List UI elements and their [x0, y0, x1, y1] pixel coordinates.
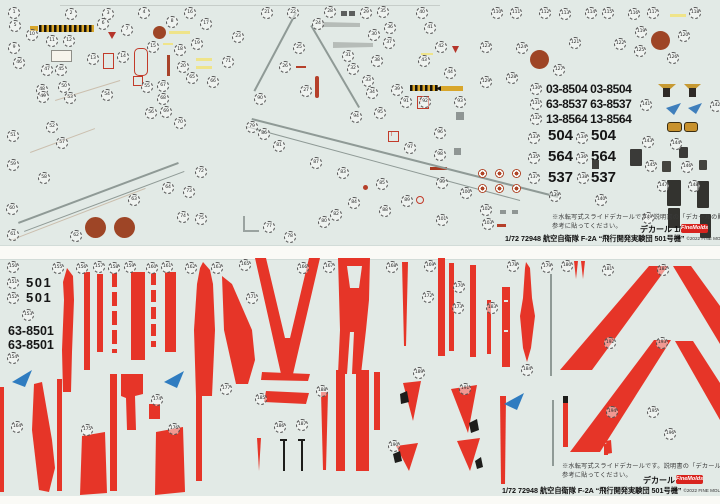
finemolds-logo: FineMolds [676, 475, 703, 484]
decal-number-marker: 192 [604, 337, 616, 349]
decal-number-marker: 160 [146, 262, 158, 274]
sheet2-number-markers: 1501511521531541551561571581591601611621… [0, 0, 720, 504]
decal-number-marker: 182 [657, 264, 669, 276]
decal-number-marker: 156 [76, 262, 88, 274]
decal-number-marker: 181 [602, 264, 614, 276]
decal-number-marker: 179 [541, 261, 553, 273]
decal-number-marker: 189 [413, 367, 425, 379]
decal-number-marker: 173 [452, 302, 464, 314]
decal-number-marker: 158 [108, 262, 120, 274]
decal-number-marker: 196 [664, 428, 676, 440]
decal-number-marker: 172 [422, 291, 434, 303]
sheet1-product-line: 1/72 72948 航空自衛隊 F-2A “飛行開発実験団 501号機”©20… [505, 234, 720, 244]
decal-number-marker: 195 [647, 406, 659, 418]
decal-number-marker: 164 [11, 421, 23, 433]
sheet1-product-text: 1/72 72948 航空自衛隊 F-2A “飛行開発実験団 501号機” [505, 234, 684, 243]
decal-number-marker: 170 [453, 281, 465, 293]
sheet1-note-line2: 参考に貼ってください。 [552, 223, 622, 230]
decal-number-marker: 194 [606, 406, 618, 418]
decal-number-marker: 153 [22, 309, 34, 321]
decal-number-marker: 166 [297, 262, 309, 274]
decal-number-marker: 155 [52, 262, 64, 274]
decal-number-marker: 152 [7, 292, 19, 304]
sheet2-product-text: 1/72 72948 航空自衛隊 F-2A “飛行開発実験団 501号機” [502, 486, 681, 495]
decal-number-marker: 159 [124, 261, 136, 273]
decal-number-marker: 154 [7, 352, 19, 364]
sheet1-note-line1: ※水転写式スライドデカールです。説明書の「デカールの貼り方」を [552, 214, 720, 221]
decal-number-marker: 185 [255, 393, 267, 405]
decal-number-marker: 163 [211, 262, 223, 274]
sheet2-note-line1: ※水転写式スライドデカールです。説明書の「デカールの貼り方」を [562, 463, 720, 470]
decal-number-marker: 183 [486, 302, 498, 314]
sheet2-product-line: 1/72 72948 航空自衛隊 F-2A “飛行開発実験団 501号機”©20… [502, 486, 720, 496]
decal-number-marker: 169 [424, 260, 436, 272]
copyright-text: ©2022 FINE MOLDS [686, 236, 720, 241]
decal-number-marker: 184 [521, 364, 533, 376]
decal-number-marker: 180 [561, 260, 573, 272]
decal-number-marker: 186 [274, 421, 286, 433]
decal-number-marker: 167 [323, 261, 335, 273]
decal-number-marker: 193 [656, 337, 668, 349]
decal-number-marker: 177 [220, 383, 232, 395]
decal-sheet-scan: { "brand": {"logo": "FineMolds", "copyri… [0, 0, 720, 504]
finemolds-logo: FineMolds [681, 224, 708, 233]
decal-number-marker: 188 [316, 385, 328, 397]
copyright-text: ©2022 FINE MOLDS [683, 488, 720, 493]
decal-number-marker: 175 [81, 424, 93, 436]
decal-number-marker: 171 [246, 292, 258, 304]
decal-number-marker: 187 [296, 419, 308, 431]
decal-number-marker: 176 [168, 423, 180, 435]
decal-number-marker: 174 [151, 394, 163, 406]
decal-number-marker: 151 [7, 277, 19, 289]
sheet2-note-line2: 参考に貼ってください。 [562, 472, 632, 479]
decal-number-marker: 178 [507, 260, 519, 272]
decal-number-marker: 157 [93, 261, 105, 273]
decal-number-marker: 162 [185, 262, 197, 274]
decal-number-marker: 165 [239, 259, 251, 271]
decal-number-marker: 168 [386, 261, 398, 273]
decal-number-marker: 191 [459, 383, 471, 395]
decal-number-marker: 190 [388, 440, 400, 452]
decal-number-marker: 161 [161, 261, 173, 273]
decal-number-marker: 150 [7, 261, 19, 273]
